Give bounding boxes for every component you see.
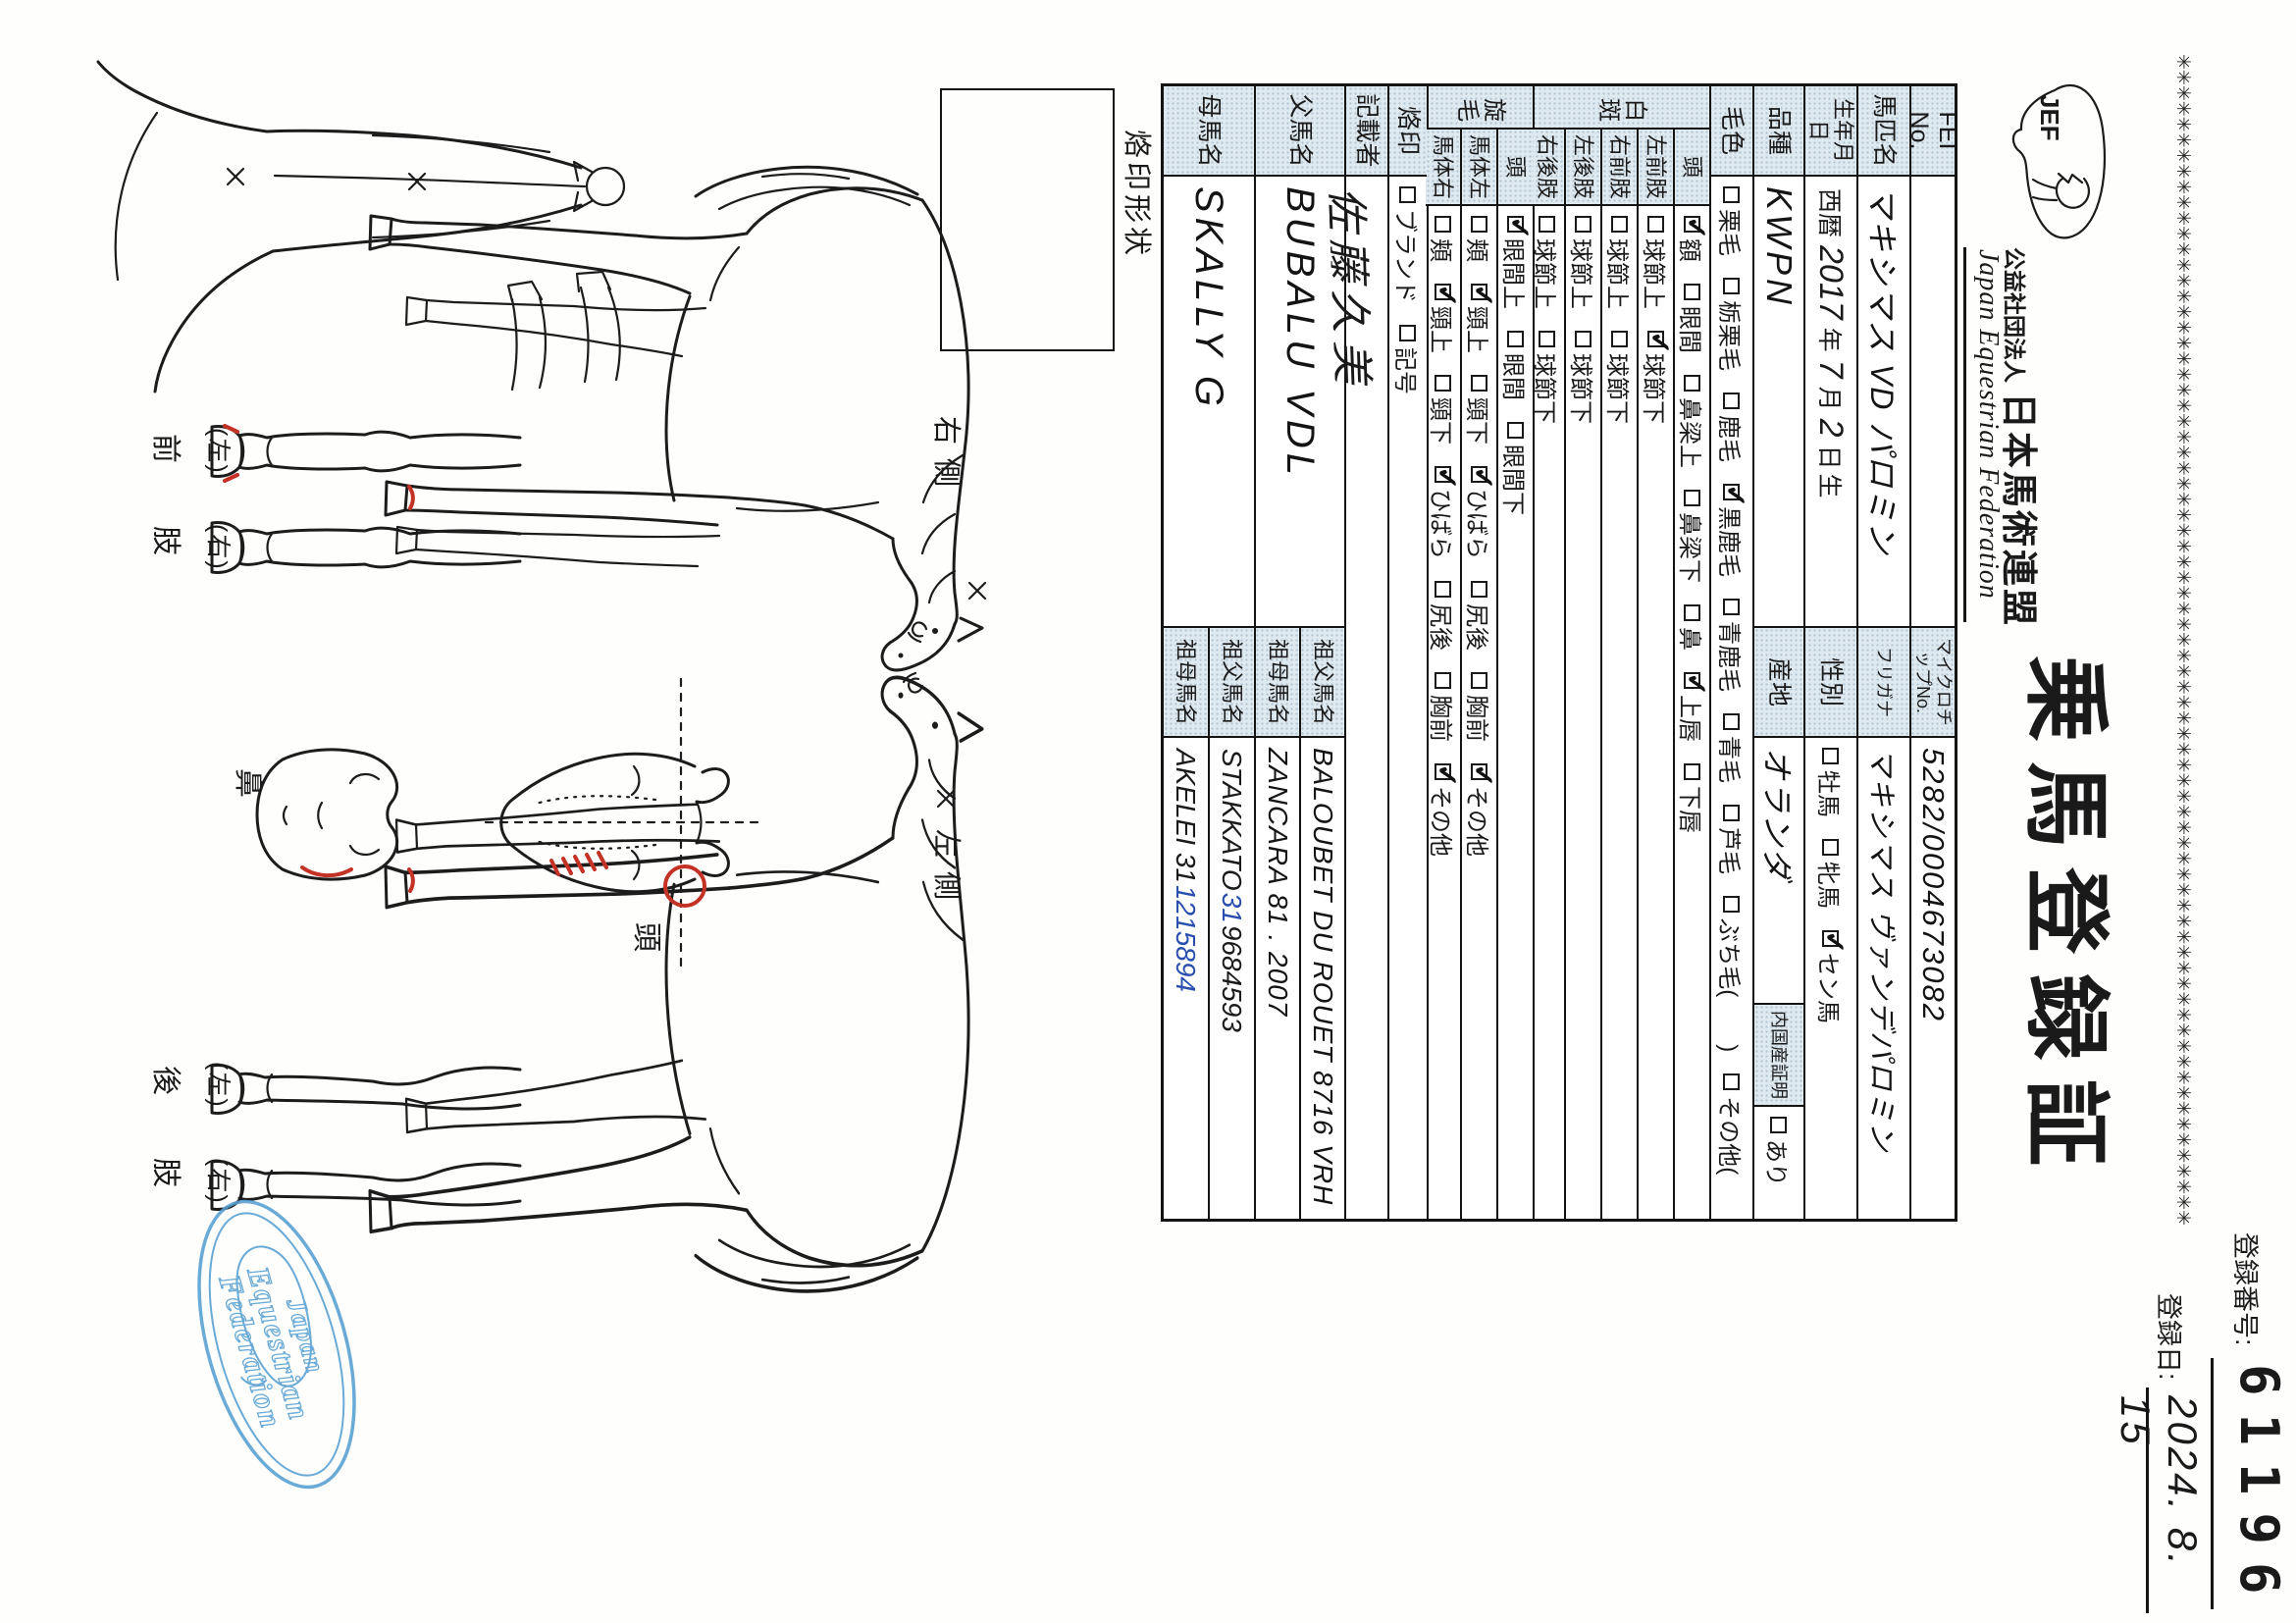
- dam-label: 母馬名: [1164, 86, 1254, 177]
- sire-grandsire-value: BALOUBET DU ROUET 8716 VRH: [1301, 738, 1344, 1219]
- option-label: 頸下: [1462, 397, 1496, 445]
- certificate-title: 乗馬登録証: [2010, 655, 2135, 1185]
- text-segment: 2: [1812, 419, 1851, 438]
- option-label: 球節上: [1639, 238, 1673, 309]
- whorls-row-body-left: 馬体左 頬頸上頸下ひばら尻後胸前その他: [1460, 130, 1496, 1219]
- red-marking: [409, 487, 413, 508]
- handwritten-scribble: [909, 622, 926, 642]
- recorder-label: 記載者: [1346, 86, 1387, 177]
- text-segment: 31: [1217, 893, 1248, 923]
- option-label: 鼻梁上: [1675, 397, 1709, 468]
- option-label: 球節上: [1566, 238, 1600, 309]
- org-name-jp: 日本馬術連盟: [1999, 393, 2039, 628]
- row-breed-origin: 品種 KWPN 産地 オランダ 内国産証明 あり: [1752, 86, 1803, 1219]
- whorl-x-mark: [969, 583, 985, 599]
- logo-horse-sketch: [2033, 174, 2089, 208]
- option-label: 球節下: [1530, 353, 1564, 424]
- empty-checkbox-icon: [1724, 393, 1741, 409]
- horse-diagram: Japan Equestrian Federation: [0, 0, 1040, 1623]
- birthdate-label: 生年月日: [1805, 86, 1856, 177]
- empty-checkbox-icon: [1684, 490, 1700, 506]
- row-recorder: 記載者 佐藤久美: [1344, 86, 1387, 1219]
- markings-left-fore-options: 球節上球節下: [1639, 206, 1673, 1219]
- breed-value: KWPN: [1754, 177, 1803, 628]
- checkbox-option: 球節上: [1566, 216, 1600, 309]
- option-label: その他: [1426, 786, 1460, 857]
- brand-label: 烙印: [1389, 86, 1427, 177]
- checkbox-option: 上唇: [1675, 672, 1709, 742]
- dam-grandsire-value: STAKKATO 31 9684593: [1210, 738, 1254, 1219]
- markings-right-fore-label: 右前肢: [1602, 130, 1637, 206]
- option-label: 頬: [1462, 238, 1496, 262]
- coat-color-label: 毛色: [1711, 86, 1752, 177]
- checkbox-option: 黒鹿毛: [1715, 484, 1749, 577]
- brand-shape-label: 烙印形状: [1119, 130, 1160, 259]
- option-label: 鹿毛: [1715, 415, 1749, 462]
- option-label: 牝馬: [1814, 862, 1849, 909]
- option-label: 球節下: [1602, 353, 1637, 424]
- whorls-body-right-options: 頬頸上頸下ひばら尻後胸前その他: [1426, 206, 1460, 1219]
- checkbox-option: 頸上: [1462, 284, 1496, 353]
- jef-logo: JEF: [2004, 63, 2112, 249]
- checked-checkbox-icon: [1724, 484, 1741, 500]
- checkbox-option: 眼間: [1498, 331, 1533, 400]
- hind-leg-label: 後肢: [147, 1066, 190, 1250]
- option-label: 尻後: [1462, 603, 1496, 651]
- dam-grandparents: 祖父馬名 STAKKATO 31 9684593 祖母馬名 AKELEI 31 …: [1164, 628, 1254, 1219]
- dam-grandsire-label: 祖父馬名: [1210, 628, 1254, 738]
- checkbox-option: 球節下: [1566, 331, 1600, 424]
- markings-left-hind-label: 左後肢: [1566, 130, 1600, 206]
- option-label: あり: [1762, 1139, 1797, 1186]
- row-whorls: 旋毛 頭 眼間上眼間眼間下 馬体左 頬頸上頸下ひばら尻後胸前その他 馬体右 頬頸…: [1427, 86, 1533, 1219]
- markings-head-options: 額眼間鼻梁上鼻梁下鼻上唇下唇: [1675, 206, 1709, 1219]
- registration-number-underline: [2211, 1358, 2214, 1609]
- markings-head-label: 頭: [1675, 130, 1709, 206]
- text-segment: 日: [1813, 445, 1849, 470]
- option-label: 胸前: [1462, 695, 1496, 742]
- empty-checkbox-icon: [1611, 216, 1628, 233]
- sex-label: 性別: [1805, 628, 1856, 738]
- option-label: その他( ): [1715, 1096, 1749, 1219]
- checked-checkbox-icon: [1684, 672, 1700, 689]
- registration-number-value: 61196: [2228, 1364, 2290, 1612]
- option-label: 頸下: [1426, 397, 1460, 445]
- text-segment: 2017: [1812, 245, 1851, 320]
- horse-name-value: マキシマス VD パロミン: [1858, 177, 1909, 628]
- option-label: 球節下: [1566, 353, 1600, 424]
- horse-name-label: 馬匹名: [1858, 86, 1909, 177]
- sire-granddam-value: ZANCARA 81 . 2007: [1256, 738, 1299, 1219]
- row-coat-color: 毛色 栗毛栃栗毛鹿毛黒鹿毛青鹿毛青毛芦毛ぶち毛( )その他( ): [1709, 86, 1752, 1219]
- sire-grandsire-row: 祖父馬名 BALOUBET DU ROUET 8716 VRH: [1299, 628, 1344, 1219]
- option-label: 球節下: [1639, 353, 1673, 424]
- whorls-head-label: 頭: [1498, 130, 1533, 206]
- checkbox-option: 青毛: [1715, 713, 1749, 783]
- checkbox-option: 球節下: [1639, 331, 1673, 424]
- markings-row-head: 頭 額眼間鼻梁上鼻梁下鼻上唇下唇: [1673, 130, 1709, 1219]
- checkbox-option: 牝馬: [1814, 839, 1849, 909]
- option-label: セン馬: [1814, 953, 1849, 1023]
- row-fei-microchip: FEI No. マイクロチップNo. 5282/0004673082: [1909, 86, 1955, 1219]
- hind-leg-right-mark: (右): [202, 1158, 237, 1205]
- empty-checkbox-icon: [1647, 216, 1664, 233]
- head-label: 頭: [628, 922, 671, 954]
- option-label: 栗毛: [1715, 209, 1749, 256]
- checkbox-option: 頸上: [1426, 284, 1460, 353]
- org-type: 公益社団法人: [2002, 247, 2027, 383]
- checkbox-option: ぶち毛( ): [1715, 896, 1749, 1052]
- furigana-label: フリガナ: [1858, 628, 1909, 738]
- hind-leg-left-mark: (左): [202, 1062, 237, 1109]
- org-divider: [1964, 247, 1967, 622]
- right-side-label: 右側: [928, 416, 969, 500]
- checkbox-option: 栗毛: [1715, 186, 1749, 256]
- markings-row-left-fore: 左前肢 球節上球節下: [1637, 130, 1673, 1219]
- checkbox-option: 眼間下: [1498, 422, 1533, 515]
- checked-checkbox-icon: [1471, 466, 1487, 483]
- checkbox-option: その他( ): [1715, 1073, 1749, 1219]
- markings-left-fore-label: 左前肢: [1639, 130, 1673, 206]
- checked-checkbox-icon: [1507, 216, 1524, 233]
- empty-checkbox-icon: [1435, 375, 1451, 392]
- sire-label: 父馬名: [1256, 86, 1344, 177]
- row-birth-sex: 生年月日 西暦2017年7月2日生 性別 牡馬牝馬セン馬: [1803, 86, 1856, 1219]
- checkbox-option: 胸前: [1426, 672, 1460, 742]
- option-label: 眼間: [1675, 306, 1709, 353]
- whorls-head-options: 眼間上眼間眼間下: [1498, 206, 1533, 1219]
- checkbox-option: 額: [1675, 216, 1709, 262]
- registration-table: FEI No. マイクロチップNo. 5282/0004673082 馬匹名 マ…: [1161, 83, 1957, 1222]
- markings-right-hind-label: 右後肢: [1530, 130, 1564, 206]
- option-label: 鼻梁下: [1675, 512, 1709, 583]
- horse-right-side-view: [370, 167, 982, 670]
- whorls-row-head: 頭 眼間上眼間眼間下: [1496, 130, 1533, 1219]
- option-label: 頬: [1426, 238, 1460, 262]
- markings-row-right-fore: 右前肢 球節上球節下: [1600, 130, 1637, 1219]
- checkbox-option: 球節上: [1639, 216, 1673, 309]
- empty-checkbox-icon: [1400, 186, 1417, 203]
- option-label: 下唇: [1675, 786, 1709, 833]
- empty-checkbox-icon: [1575, 216, 1592, 233]
- horse-head-front-view: [479, 679, 757, 967]
- sire-grandsire-label: 祖父馬名: [1301, 628, 1344, 738]
- microchip-value: 5282/0004673082: [1911, 738, 1955, 1219]
- checkbox-option: 頬: [1426, 216, 1460, 262]
- option-label: ひばら: [1426, 489, 1460, 559]
- jef-stamp: Japan Equestrian Federation: [170, 1184, 383, 1505]
- option-label: 黒鹿毛: [1715, 506, 1749, 577]
- domestic-cert-options: あり: [1754, 1107, 1803, 1219]
- checkbox-option: 胸前: [1462, 672, 1496, 742]
- checkbox-option: ブランド: [1391, 186, 1426, 303]
- whorls-group: 頭 眼間上眼間眼間下 馬体左 頬頸上頸下ひばら尻後胸前その他 馬体右 頬頸上頸下…: [1429, 130, 1533, 1219]
- option-label: 栃栗毛: [1715, 300, 1749, 371]
- scanned-certificate-page: { "border": { "asterisk_line": "✳✳✳✳✳✳✳✳…: [0, 0, 2296, 1623]
- empty-checkbox-icon: [1684, 375, 1700, 392]
- whorl-x-mark: [228, 169, 243, 184]
- checkbox-option: 鼻: [1675, 604, 1709, 651]
- checkbox-option: 青鹿毛: [1715, 599, 1749, 692]
- registration-date-underline: [2146, 1387, 2149, 1613]
- option-label: ひばら: [1462, 489, 1496, 559]
- coat-color-options: 栗毛栃栗毛鹿毛黒鹿毛青鹿毛青毛芦毛ぶち毛( )その他( ): [1711, 177, 1752, 1219]
- front-leg-left-mark: (左): [202, 428, 237, 475]
- empty-checkbox-icon: [1684, 284, 1700, 300]
- option-label: 胸前: [1426, 695, 1460, 742]
- row-white-markings: 白斑 頭 額眼間鼻梁上鼻梁下鼻上唇下唇 左前肢 球節上球節下 右前肢 球節上球節…: [1533, 86, 1709, 1219]
- checkbox-option: あり: [1762, 1117, 1797, 1186]
- markings-row-left-hind: 左後肢 球節上球節下: [1564, 130, 1600, 1219]
- front-leg-right-mark: (右): [202, 524, 237, 571]
- option-label: 眼間: [1498, 353, 1533, 400]
- empty-checkbox-icon: [1684, 763, 1700, 780]
- text-segment: 7: [1812, 360, 1851, 379]
- row-name: 馬匹名 マキシマス VD パロミン フリガナ マキシマス ヴァンデパロミン: [1856, 86, 1909, 1219]
- checkbox-option: 尻後: [1426, 581, 1460, 651]
- checkbox-option: 鼻梁下: [1675, 490, 1709, 583]
- empty-checkbox-icon: [1724, 713, 1741, 730]
- option-label: 尻後: [1426, 603, 1460, 651]
- sire-granddam-row: 祖母馬名 ZANCARA 81 . 2007: [1256, 628, 1299, 1219]
- whorls-label: 旋毛: [1429, 86, 1533, 130]
- registration-number-label: 登録番号:: [2228, 1232, 2267, 1346]
- certificate-sheet: 登録番号: 61196 登録日: 2024. 8. 15 ✳✳✳✳✳✳✳✳✳✳✳…: [0, 0, 2296, 1623]
- empty-checkbox-icon: [1611, 331, 1628, 347]
- empty-checkbox-icon: [1507, 331, 1524, 347]
- option-label: その他: [1462, 786, 1496, 857]
- microchip-label: マイクロチップNo.: [1911, 628, 1955, 738]
- markings-right-fore-options: 球節上球節下: [1602, 206, 1637, 1219]
- breed-label: 品種: [1754, 86, 1803, 177]
- checkbox-option: 球節下: [1602, 331, 1637, 424]
- birthdate-value: 西暦2017年7月2日生: [1805, 177, 1856, 628]
- empty-checkbox-icon: [1435, 216, 1451, 233]
- empty-checkbox-icon: [1539, 331, 1555, 347]
- empty-checkbox-icon: [1471, 216, 1487, 233]
- checked-checkbox-icon: [1435, 466, 1451, 483]
- option-label: 芦毛: [1715, 827, 1749, 874]
- empty-checkbox-icon: [1771, 1117, 1788, 1133]
- option-label: 鼻: [1675, 627, 1709, 651]
- whorls-row-body-right: 馬体右 頬頸上頸下ひばら尻後胸前その他: [1426, 130, 1460, 1219]
- option-label: 青毛: [1715, 736, 1749, 783]
- checkbox-option: 下唇: [1675, 763, 1709, 833]
- whorl-x-mark: [938, 791, 954, 807]
- checkbox-option: 牡馬: [1814, 748, 1849, 817]
- option-label: 頸上: [1426, 306, 1460, 353]
- front-leg-right-art: [212, 522, 520, 572]
- org-name-en: Japan Equestrian Federation: [1972, 249, 2004, 600]
- whorls-body-right-label: 馬体右: [1426, 130, 1460, 206]
- horse-top-view: [98, 62, 624, 392]
- whorl-x-mark: [409, 174, 425, 189]
- checkbox-option: 鼻梁上: [1675, 375, 1709, 468]
- option-label: 額: [1675, 238, 1709, 262]
- checkbox-option: その他: [1426, 763, 1460, 857]
- checkbox-option: 眼間: [1675, 284, 1709, 353]
- dam-granddam-label: 祖母馬名: [1164, 628, 1208, 738]
- checked-checkbox-icon: [1647, 331, 1664, 347]
- org-name-line: 公益社団法人日本馬術連盟: [1996, 247, 2049, 628]
- empty-checkbox-icon: [1724, 1073, 1741, 1090]
- markings-row-right-hind: 右後肢 球節上球節下: [1530, 130, 1564, 1219]
- empty-checkbox-icon: [1724, 805, 1741, 821]
- horse-left-side-view: [370, 677, 982, 1291]
- option-label: 眼間下: [1498, 445, 1533, 515]
- text-segment: 月: [1813, 387, 1849, 411]
- option-label: 上唇: [1675, 695, 1709, 742]
- origin-label: 産地: [1754, 628, 1803, 738]
- empty-checkbox-icon: [1724, 278, 1741, 294]
- empty-checkbox-icon: [1435, 672, 1451, 689]
- whorls-body-left-label: 馬体左: [1462, 130, 1496, 206]
- dam-granddam-row: 祖母馬名 AKELEI 31 1215894: [1164, 628, 1208, 1219]
- option-label: 記号: [1391, 347, 1426, 394]
- dam-value: SKALLY G: [1164, 177, 1254, 628]
- text-segment: 1215894: [1171, 885, 1202, 992]
- left-side-label: 左側: [928, 829, 969, 914]
- row-dam: 母馬名 SKALLY G 祖父馬名 STAKKATO 31 9684593 祖母…: [1164, 86, 1254, 1219]
- checkbox-option: 頸下: [1462, 375, 1496, 445]
- empty-checkbox-icon: [1471, 375, 1487, 392]
- checkbox-option: 球節下: [1530, 331, 1564, 424]
- option-label: 球節上: [1602, 238, 1637, 309]
- checked-checkbox-icon: [1471, 763, 1487, 780]
- checked-checkbox-icon: [1435, 284, 1451, 300]
- horse-muzzle-view: [257, 750, 397, 879]
- checkbox-option: セン馬: [1814, 930, 1849, 1023]
- option-label: ぶち毛( ): [1715, 918, 1749, 1052]
- checkbox-option: ひばら: [1462, 466, 1496, 559]
- checked-checkbox-icon: [1471, 284, 1487, 300]
- checkbox-option: 眼間上: [1498, 216, 1533, 309]
- checkbox-option: ひばら: [1426, 466, 1460, 559]
- checked-checkbox-icon: [1684, 216, 1700, 233]
- sex-options: 牡馬牝馬セン馬: [1805, 738, 1856, 1219]
- text-segment: STAKKATO: [1217, 749, 1248, 891]
- furigana-value: マキシマス ヴァンデパロミン: [1858, 738, 1909, 1219]
- front-leg-left-art: [212, 426, 520, 476]
- checkbox-option: 球節上: [1530, 216, 1564, 309]
- checkbox-option: 芦毛: [1715, 805, 1749, 874]
- checkbox-option: 記号: [1391, 325, 1426, 394]
- sire-grandparents: 祖父馬名 BALOUBET DU ROUET 8716 VRH 祖母馬名 ZAN…: [1256, 628, 1344, 1219]
- fei-value: [1911, 177, 1955, 628]
- checked-checkbox-icon: [1435, 763, 1451, 780]
- origin-value: オランダ: [1754, 738, 1803, 1005]
- checkbox-option: その他: [1462, 763, 1496, 857]
- empty-checkbox-icon: [1471, 581, 1487, 598]
- checkbox-option: 栃栗毛: [1715, 278, 1749, 371]
- checkbox-option: 鹿毛: [1715, 393, 1749, 462]
- text-segment: 年: [1813, 328, 1849, 352]
- empty-checkbox-icon: [1507, 422, 1524, 439]
- markings-right-hind-options: 球節上球節下: [1530, 206, 1564, 1219]
- checked-checkbox-icon: [1823, 930, 1840, 947]
- empty-checkbox-icon: [1724, 186, 1741, 203]
- fei-label: FEI No.: [1911, 86, 1955, 177]
- text-segment: 西暦: [1813, 188, 1849, 237]
- text-segment: 生: [1813, 474, 1849, 498]
- empty-checkbox-icon: [1435, 581, 1451, 598]
- red-marking: [302, 867, 351, 875]
- nose-label: 鼻: [230, 768, 273, 800]
- dam-grandsire-row: 祖父馬名 STAKKATO 31 9684593: [1208, 628, 1254, 1219]
- empty-checkbox-icon: [1539, 216, 1555, 233]
- empty-checkbox-icon: [1724, 599, 1741, 615]
- option-label: 頸上: [1462, 306, 1496, 353]
- whorls-body-left-options: 頬頸上頸下ひばら尻後胸前その他: [1462, 206, 1496, 1219]
- option-label: 牡馬: [1814, 770, 1849, 817]
- empty-checkbox-icon: [1823, 839, 1840, 856]
- option-label: 青鹿毛: [1715, 621, 1749, 692]
- option-label: 球節上: [1530, 238, 1564, 309]
- markings-left-hind-options: 球節上球節下: [1566, 206, 1600, 1219]
- empty-checkbox-icon: [1575, 331, 1592, 347]
- checkbox-option: 球節上: [1602, 216, 1637, 309]
- empty-checkbox-icon: [1724, 896, 1741, 913]
- empty-checkbox-icon: [1471, 672, 1487, 689]
- sire-granddam-label: 祖母馬名: [1256, 628, 1299, 738]
- asterisk-border: ✳✳✳✳✳✳✳✳✳✳✳✳✳✳✳✳✳✳✳✳✳✳✳✳✳✳✳✳✳✳✳✳✳✳✳✳✳✳✳✳…: [2168, 54, 2194, 1581]
- white-markings-group: 頭 額眼間鼻梁上鼻梁下鼻上唇下唇 左前肢 球節上球節下 右前肢 球節上球節下 左…: [1535, 130, 1709, 1219]
- checkbox-option: 頬: [1462, 216, 1496, 262]
- front-leg-label: 前肢: [147, 434, 190, 618]
- empty-checkbox-icon: [1823, 748, 1840, 764]
- domestic-cert-label: 内国産証明: [1754, 1005, 1803, 1107]
- empty-checkbox-icon: [1684, 604, 1700, 621]
- option-label: ブランド: [1391, 209, 1426, 303]
- hind-leg-left-art: [212, 1065, 520, 1113]
- logo-text: JEF: [2035, 94, 2064, 141]
- white-markings-label: 白斑: [1535, 86, 1709, 130]
- checkbox-option: 頸下: [1426, 375, 1460, 445]
- text-segment: 9684593: [1217, 925, 1248, 1032]
- checkbox-option: 尻後: [1462, 581, 1496, 651]
- text-segment: AKELEI 31: [1171, 749, 1202, 883]
- empty-checkbox-icon: [1400, 325, 1417, 341]
- red-marking: [409, 869, 413, 891]
- dam-granddam-value: AKELEI 31 1215894: [1164, 738, 1208, 1219]
- option-label: 眼間上: [1498, 238, 1533, 309]
